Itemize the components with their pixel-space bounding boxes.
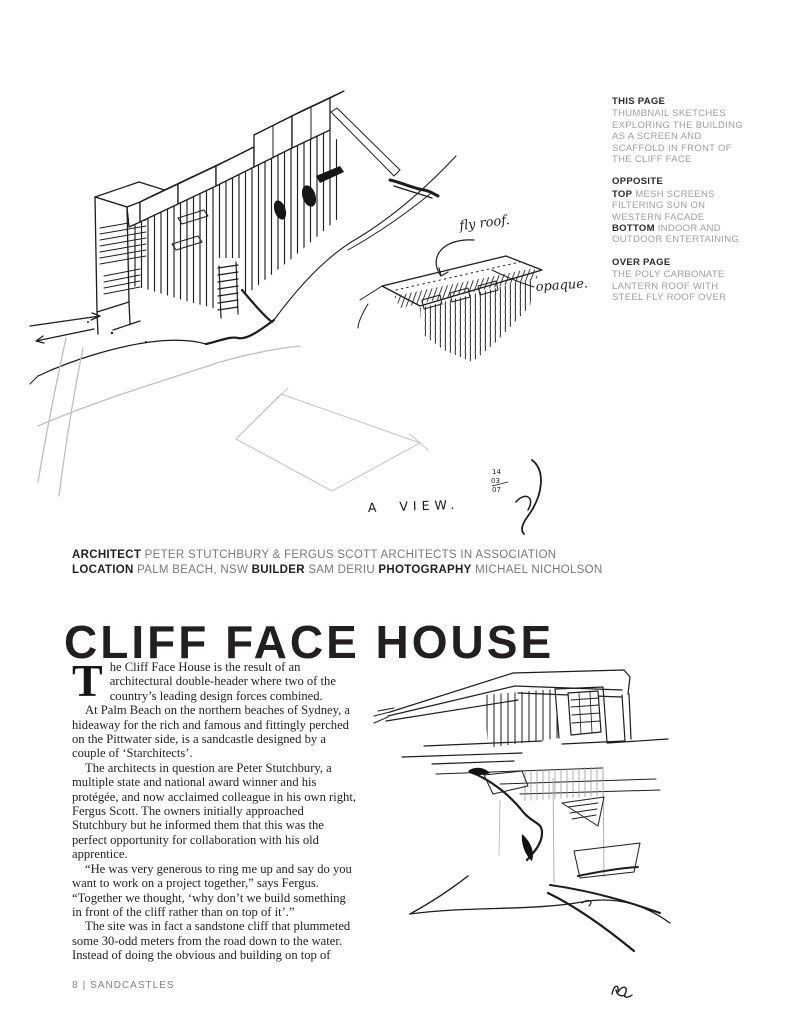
svg-text:14: 14 xyxy=(492,468,501,476)
article-body: The Cliff Face House is the result of an… xyxy=(72,660,358,963)
page-number: 8 xyxy=(72,980,79,991)
pencil-lines-sketch xyxy=(38,338,428,496)
caption-text: TOP MESH SCREENS FILTERING SUN ON WESTER… xyxy=(612,189,750,223)
caption-heading: OVER PAGE xyxy=(612,257,750,268)
svg-text:03: 03 xyxy=(491,477,500,485)
caption-opposite: OPPOSITE TOP MESH SCREENS FILTERING SUN … xyxy=(612,176,750,245)
caption-over-page: OVER PAGE THE POLY CARBONATE LANTERN ROO… xyxy=(612,257,750,304)
thumbnail-sketch-image: fly roof. opaque. A VIEW. 14 03 07 xyxy=(28,90,593,542)
article-paragraph: The architects in question are Peter Stu… xyxy=(72,761,358,862)
water-reflection-sketch xyxy=(436,766,660,883)
book-title: SANDCASTLES xyxy=(90,980,174,991)
a-view-label: A VIEW. xyxy=(368,497,460,515)
caption-text: THUMBNAIL SKETCHES EXPLORING THE BUILDIN… xyxy=(612,108,750,165)
footer-divider: | xyxy=(83,980,87,991)
fly-roof-sketch: fly roof. opaque. xyxy=(358,213,589,362)
sketch-signature xyxy=(612,986,632,997)
magazine-page: fly roof. opaque. A VIEW. 14 03 07 THIS … xyxy=(0,0,793,1024)
pavilion-sketch xyxy=(374,670,668,764)
caption-this-page: THIS PAGE THUMBNAIL SKETCHES EXPLORING T… xyxy=(612,96,750,165)
caption-text: BOTTOM INDOOR AND OUTDOOR ENTERTAINING xyxy=(612,223,750,246)
article-paragraph: The site was in fact a sandstone cliff t… xyxy=(72,919,358,962)
caption-heading: THIS PAGE xyxy=(612,96,750,107)
caption-sidebar: THIS PAGE THUMBNAIL SKETCHES EXPLORING T… xyxy=(612,96,750,315)
article-paragraph: The Cliff Face House is the result of an… xyxy=(72,660,358,703)
credit-line-architect: ARCHITECT PETER STUTCHBURY & FERGUS SCOT… xyxy=(72,548,632,563)
article-paragraph: “He was very generous to ring me up and … xyxy=(72,862,358,920)
perspective-sketch-image xyxy=(372,645,707,1017)
credit-line-location: LOCATION PALM BEACH, NSW BUILDER SAM DER… xyxy=(72,563,632,578)
article-paragraph: At Palm Beach on the northern beaches of… xyxy=(72,703,358,761)
ground-lines-sketch xyxy=(410,876,670,951)
page-footer: 8|SANDCASTLES xyxy=(72,980,175,991)
architect-signature xyxy=(516,460,541,534)
svg-text:07: 07 xyxy=(492,486,501,494)
caption-text: THE POLY CARBONATE LANTERN ROOF WITH STE… xyxy=(612,269,750,303)
opaque-label: opaque. xyxy=(535,276,588,295)
handwritten-notes: A VIEW. 14 03 07 xyxy=(368,460,541,534)
fly-roof-label: fly roof. xyxy=(458,213,511,234)
project-credits: ARCHITECT PETER STUTCHBURY & FERGUS SCOT… xyxy=(72,548,632,577)
dropcap: T xyxy=(72,660,110,698)
caption-heading: OPPOSITE xyxy=(612,176,750,187)
